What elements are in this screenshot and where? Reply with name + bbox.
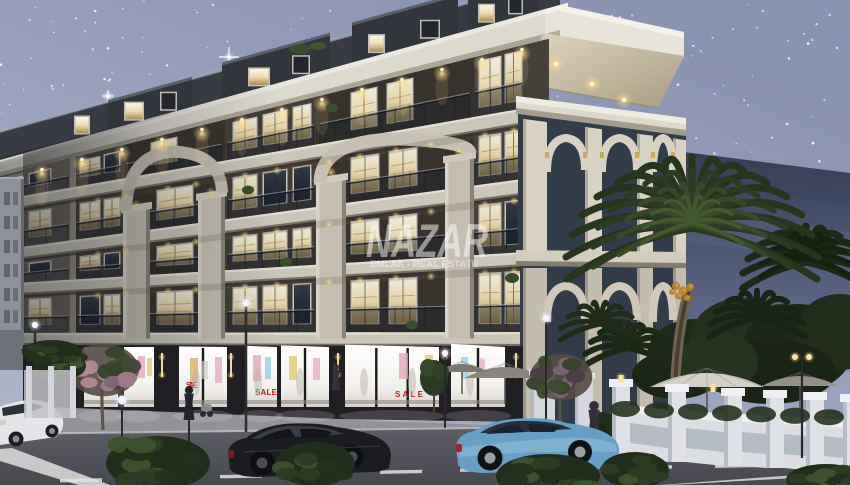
svg-text:EMLAK - REAL ESTATE: EMLAK - REAL ESTATE bbox=[370, 259, 478, 270]
svg-text:SAN LI: SAN LI bbox=[479, 356, 498, 362]
